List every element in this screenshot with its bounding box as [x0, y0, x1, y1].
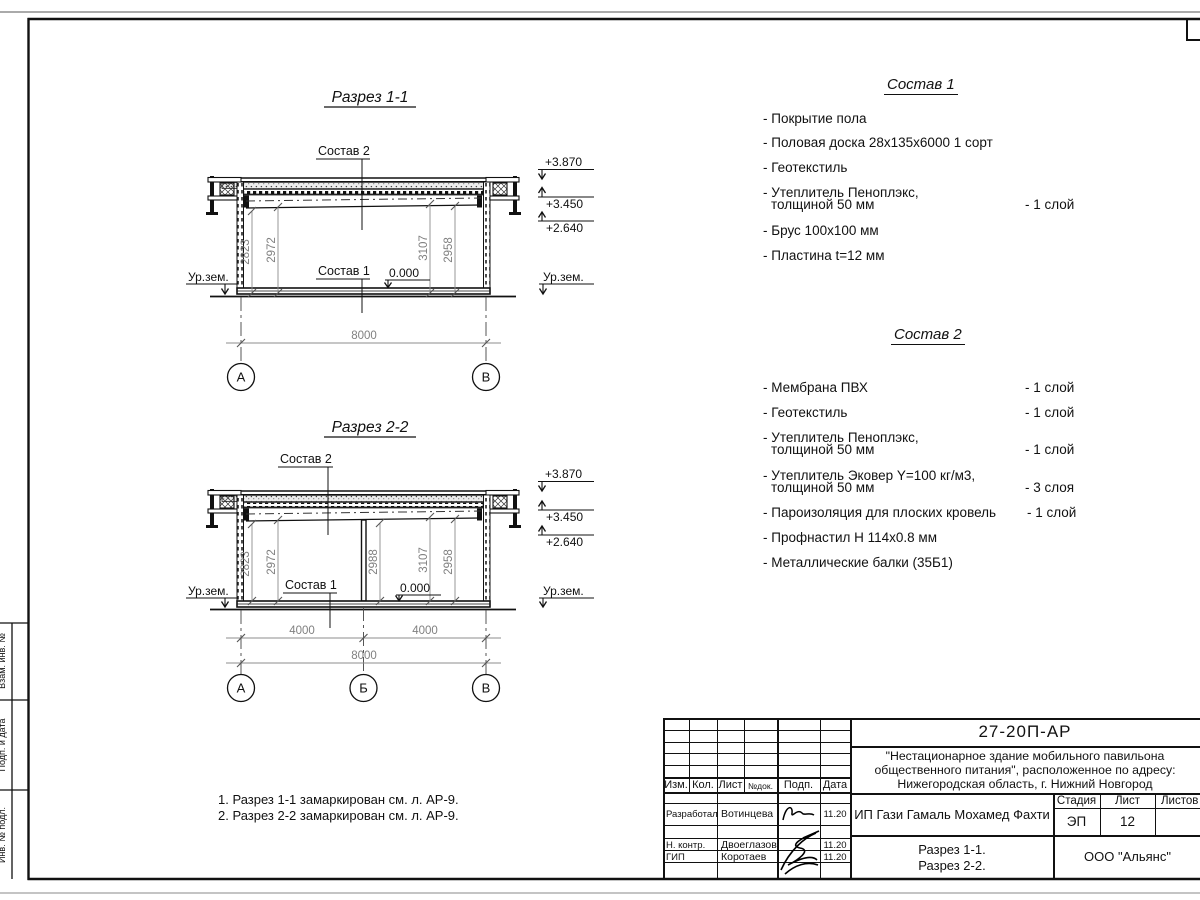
- section1-dim-2972: 2972: [266, 237, 278, 263]
- col-data: Дата: [820, 779, 850, 791]
- section1-ground-left: Ур.зем.: [188, 270, 229, 284]
- sostav2-item-qty: - 1 слой: [1025, 380, 1074, 395]
- row-date-2: 11.20: [820, 840, 850, 851]
- doc-code: 27-20П-АР: [852, 722, 1198, 742]
- section2-dim-4000-left: 4000: [289, 625, 315, 637]
- row-name-dvoeglazov: Двоеглазов: [721, 839, 777, 851]
- section2-dim-2958: 2958: [443, 549, 455, 575]
- corner-stamp-box: [1187, 19, 1200, 40]
- sostav2-item: - Профнастил Н 114х0.8 мм: [763, 530, 937, 545]
- section1-dim-2958: 2958: [443, 237, 455, 263]
- right-canopy-bracket-2: [486, 489, 521, 528]
- section2-axis-lines: [241, 607, 486, 674]
- sheets-label: Листов: [1161, 795, 1198, 807]
- sostav1-item: - Половая доска 28х135х6000 1 сорт: [763, 135, 993, 150]
- col-list: Лист: [717, 779, 744, 791]
- section2-zero-level: 0.000: [400, 581, 430, 595]
- stage-label: Стадия: [1053, 795, 1100, 807]
- sostav2-item: - Геотекстиль: [763, 405, 847, 420]
- signatures: [777, 798, 820, 878]
- col-izm: Изм.: [663, 779, 689, 791]
- section1-dim-total: 8000: [351, 330, 377, 342]
- section1-elev-2640: +2.640: [546, 221, 583, 235]
- project-name-line3: Нижегородская область, г. Нижний Новгоро…: [852, 777, 1198, 791]
- sheet-title-line1: Разрез 1-1.: [852, 842, 1052, 857]
- sostav2-item: - Пароизоляция для плоских кровель: [763, 505, 996, 520]
- left-canopy-bracket: [206, 176, 241, 215]
- signature-gip: [781, 831, 819, 874]
- section1-dim-2823: 2823: [240, 239, 252, 265]
- section2-ground-right: Ур.зем.: [543, 584, 584, 598]
- sheet-title-line2: Разрез 2-2.: [852, 858, 1052, 873]
- right-canopy-bracket: [486, 176, 521, 215]
- sostav2-item: - Металлические балки (35Б1): [763, 555, 953, 570]
- section2-sostav1-label: Состав 1: [285, 578, 337, 592]
- sostav1-item: - Геотекстиль: [763, 160, 847, 175]
- note-line-2: 2. Разрез 2-2 замаркирован см. л. АР-9.: [218, 808, 459, 824]
- client-name: ИП Гази Гамаль Мохамед Фахти: [852, 807, 1052, 822]
- left-margin-labels: Взам. инв. № Подп. и дата Инв. № подл.: [0, 633, 7, 863]
- sostav1-item-qty: - 1 слой: [1025, 197, 1074, 212]
- row-role-nkontr: Н. контр.: [666, 840, 705, 851]
- col-kol: Кол.: [689, 779, 717, 791]
- project-name-line2: общественного питания", расположенное по…: [852, 763, 1198, 777]
- signature-votintseva: [783, 808, 814, 820]
- sheet-label: Лист: [1100, 795, 1155, 807]
- sostav2-item-qty: - 1 слой: [1025, 405, 1074, 420]
- row-role-razrabotal: Разработал: [666, 809, 718, 820]
- sostav2-item-cont: толщиной 50 мм: [771, 480, 874, 495]
- margin-label-vzam: Взам. инв. №: [0, 633, 7, 689]
- section2-title: Разрез 2-2: [332, 419, 409, 436]
- section-1-1-drawing: Разрез 1-1: [186, 89, 594, 391]
- section2-dim-3107: 3107: [418, 547, 430, 573]
- margin-label-inv: Инв. № подл.: [0, 807, 7, 863]
- section2-elev-2640: +2.640: [546, 535, 583, 549]
- section1-ground-right: Ур.зем.: [543, 270, 584, 284]
- section2-axis-a: А: [237, 681, 246, 696]
- sostav1-item: - Покрытие пола: [763, 111, 866, 126]
- section1-axis-b: В: [482, 370, 491, 385]
- project-name-line1: "Нестационарное здание мобильного павиль…: [852, 749, 1198, 763]
- section-2-2-drawing: Разрез 2-2: [186, 419, 594, 702]
- sostav2-item-qty: - 3 слоя: [1025, 480, 1074, 495]
- row-name-votintseva: Вотинцева: [721, 808, 773, 820]
- sostav1-item: - Брус 100х100 мм: [763, 223, 879, 238]
- section2-dim-4000-right: 4000: [412, 625, 438, 637]
- row-role-gip: ГИП: [666, 852, 685, 863]
- sostav2-heading: Состав 2: [891, 326, 965, 345]
- col-ndok: №док.: [744, 781, 777, 791]
- section1-title: Разрез 1-1: [332, 89, 409, 106]
- note-line-1: 1. Разрез 1-1 замаркирован см. л. АР-9.: [218, 792, 459, 808]
- sheet-value: 12: [1100, 814, 1155, 829]
- section2-dim-2823: 2823: [240, 551, 252, 577]
- section2-axis-b: Б: [359, 681, 368, 696]
- sostav1-heading: Состав 1: [884, 76, 958, 95]
- sostav1-item: - Пластина t=12 мм: [763, 248, 885, 263]
- section2-sostav2-label: Состав 2: [280, 452, 332, 466]
- sostav1-item-cont: толщиной 50 мм: [771, 197, 874, 212]
- section2-dim-2988: 2988: [368, 549, 380, 575]
- section2-elev-3870: +3.870: [545, 467, 582, 481]
- section2-elev-3450: +3.450: [546, 510, 583, 524]
- section2-dim-2972: 2972: [266, 549, 278, 575]
- section1-axis-a: А: [237, 370, 246, 385]
- stage-value: ЭП: [1053, 814, 1100, 829]
- row-name-korotaev: Коротаев: [721, 851, 766, 863]
- left-canopy-bracket-2: [206, 489, 241, 528]
- section2-dim-total: 8000: [351, 650, 377, 662]
- col-podp: Подп.: [777, 779, 820, 791]
- row-date-1: 11.20: [820, 809, 850, 820]
- section1-dim-3107: 3107: [418, 235, 430, 261]
- section1-elev-3450: +3.450: [546, 197, 583, 211]
- sostav2-item-qty: - 1 слой: [1027, 505, 1076, 520]
- section1-sostav2-label: Состав 2: [318, 144, 370, 158]
- section2-ground-left: Ур.зем.: [188, 584, 229, 598]
- section1-zero-level: 0.000: [389, 266, 419, 280]
- section1-elev-3870: +3.870: [545, 155, 582, 169]
- middle-column: [362, 520, 367, 601]
- organization-name: ООО "Альянс": [1055, 849, 1200, 864]
- section2-axis-v: В: [482, 681, 491, 696]
- drawing-sheet: Взам. инв. № Подп. и дата Инв. № подл. Р…: [0, 0, 1200, 900]
- sostav2-item-qty: - 1 слой: [1025, 442, 1074, 457]
- margin-label-podp: Подп. и дата: [0, 718, 7, 771]
- sostav2-item: - Мембрана ПВХ: [763, 380, 868, 395]
- title-block: 27-20П-АР "Нестационарное здание мобильн…: [663, 718, 1200, 880]
- section1-sostav1-label: Состав 1: [318, 264, 370, 278]
- sostav2-item-cont: толщиной 50 мм: [771, 442, 874, 457]
- row-date-3: 11.20: [820, 852, 850, 863]
